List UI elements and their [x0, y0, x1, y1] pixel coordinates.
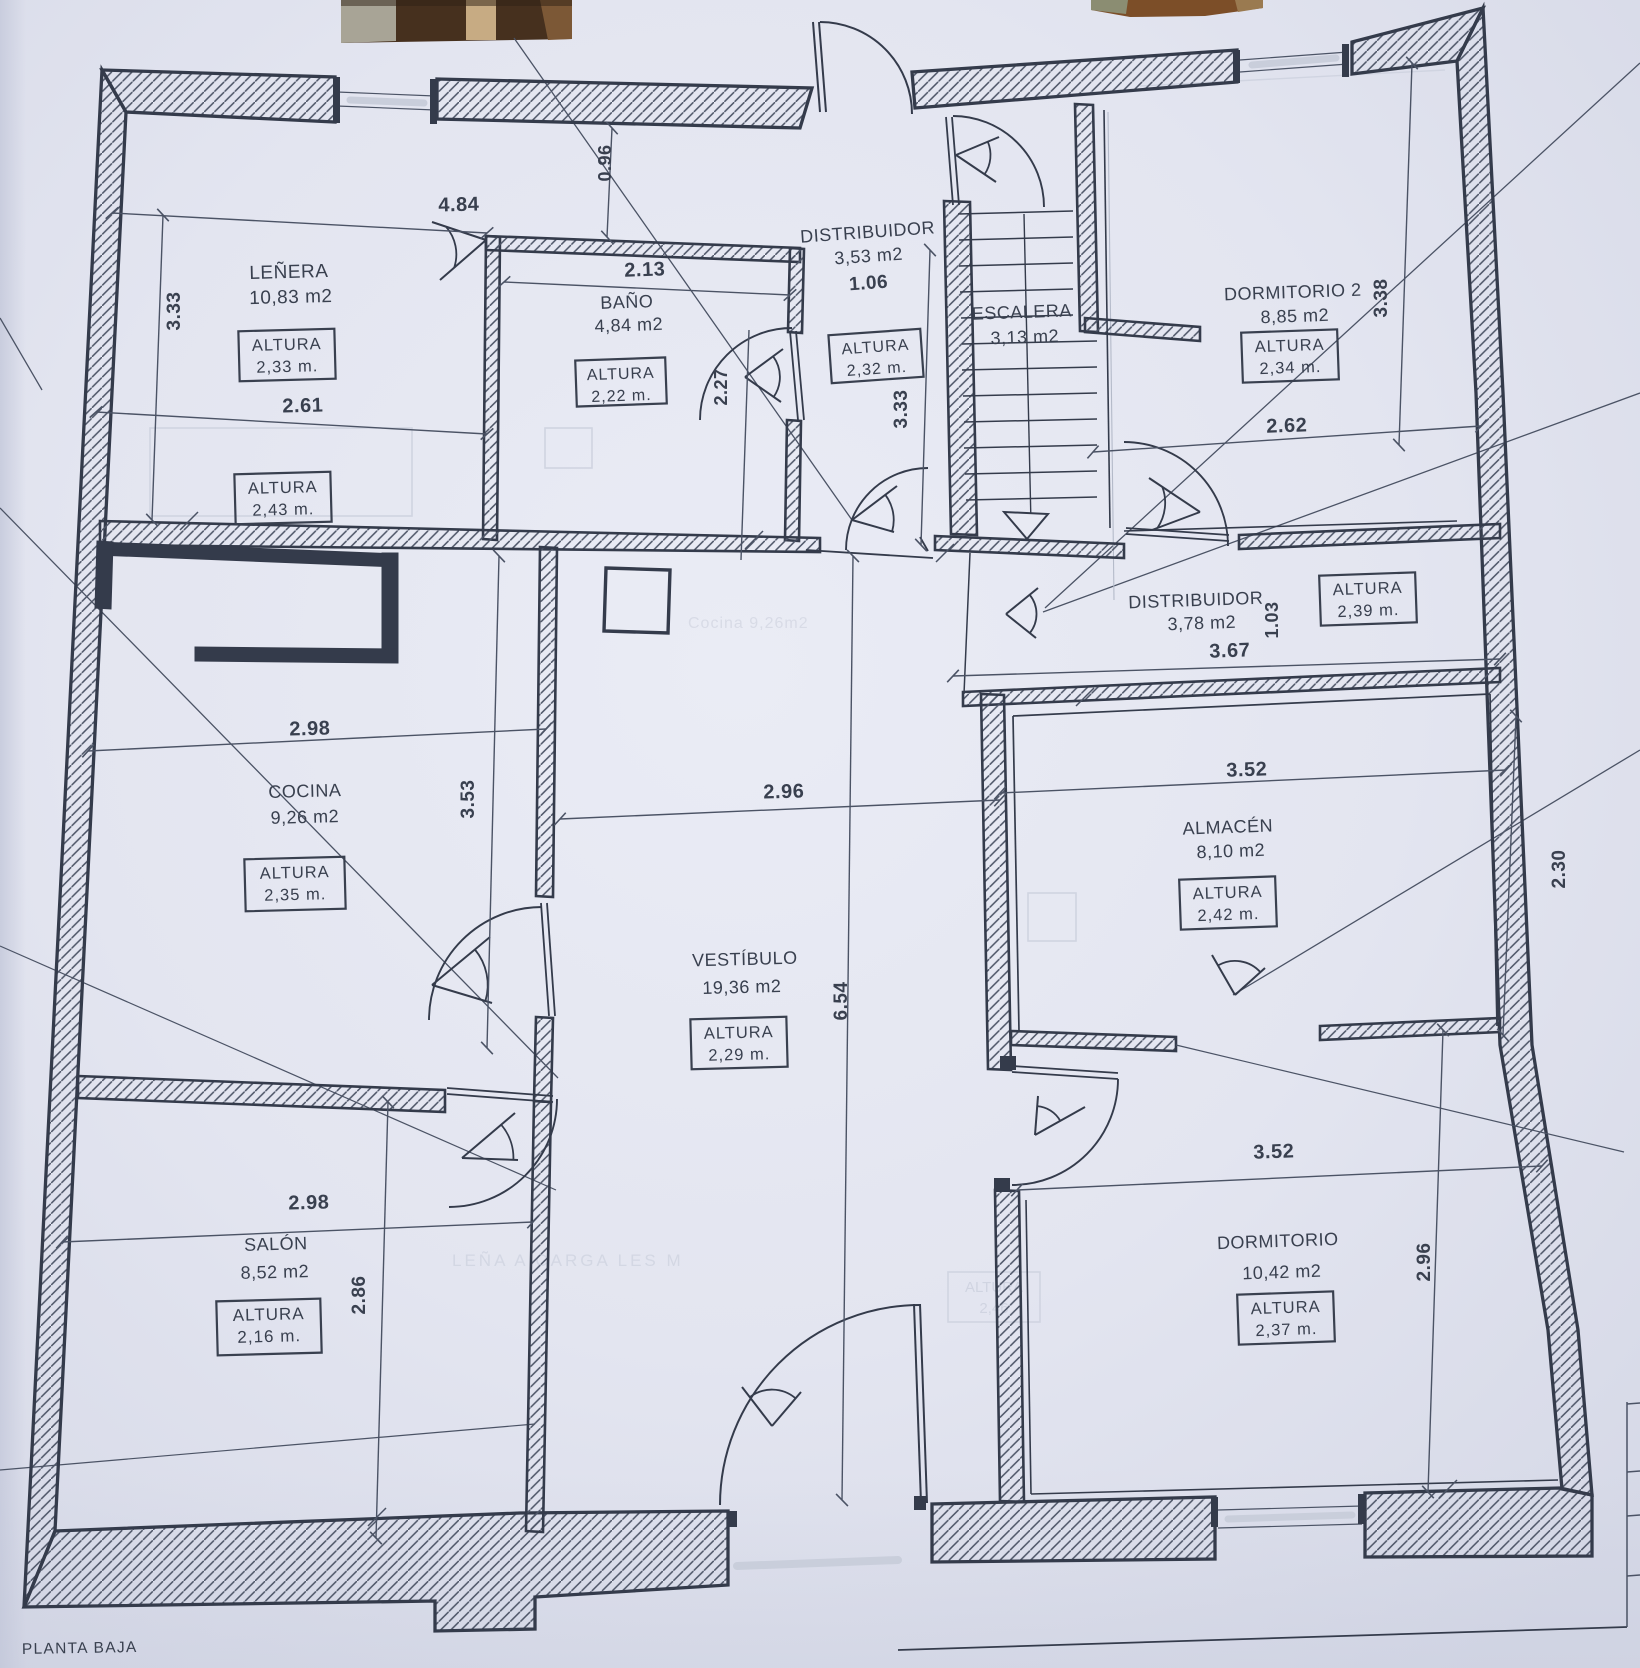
svg-text:4,84 m2: 4,84 m2: [594, 314, 663, 336]
svg-text:ALTURA: ALTURA: [252, 335, 322, 355]
svg-text:2.13: 2.13: [624, 258, 666, 281]
svg-text:3,78 m2: 3,78 m2: [1167, 612, 1236, 634]
svg-text:ALTURA: ALTURA: [1254, 336, 1324, 356]
svg-text:2.62: 2.62: [1266, 414, 1308, 437]
svg-text:1.06: 1.06: [848, 272, 888, 296]
svg-text:2.96: 2.96: [763, 780, 804, 803]
svg-text:ALTURA: ALTURA: [586, 365, 654, 384]
svg-text:9,26 m2: 9,26 m2: [270, 806, 339, 828]
svg-text:10,42 m2: 10,42 m2: [1242, 1261, 1322, 1284]
svg-text:BAÑO: BAÑO: [600, 290, 654, 313]
svg-text:VESTÍBULO: VESTÍBULO: [692, 948, 798, 971]
svg-text:ESCALERA: ESCALERA: [971, 300, 1072, 323]
svg-text:4.84: 4.84: [438, 193, 480, 216]
svg-text:2,22 m.: 2,22 m.: [591, 387, 652, 406]
svg-text:6.54: 6.54: [831, 982, 852, 1021]
svg-text:ALMACÉN: ALMACÉN: [1182, 815, 1273, 838]
svg-text:ALTURA: ALTURA: [233, 1304, 305, 1325]
svg-text:ALTURA: ALTURA: [248, 478, 318, 498]
svg-text:2.98: 2.98: [289, 717, 330, 740]
svg-text:3.38: 3.38: [1371, 279, 1392, 318]
svg-text:LEÑERA: LEÑERA: [249, 260, 329, 284]
svg-text:2,16 m.: 2,16 m.: [237, 1326, 301, 1347]
svg-text:ALTURA: ALTURA: [1192, 883, 1262, 903]
svg-text:2,29 m.: 2,29 m.: [708, 1045, 770, 1065]
svg-text:2,43 m.: 2,43 m.: [252, 500, 314, 520]
svg-text:3.52: 3.52: [1253, 1140, 1295, 1163]
svg-text:2,33 m.: 2,33 m.: [256, 357, 318, 377]
svg-text:3.52: 3.52: [1226, 758, 1268, 781]
svg-text:2.27: 2.27: [711, 368, 731, 405]
svg-text:3,13 m2: 3,13 m2: [990, 326, 1059, 348]
svg-text:2.30: 2.30: [1549, 850, 1570, 889]
svg-text:ALTURA: ALTURA: [1250, 1298, 1320, 1318]
svg-text:2,37 m.: 2,37 m.: [1255, 1320, 1318, 1340]
svg-text:DORMITORIO: DORMITORIO: [1217, 1229, 1339, 1253]
svg-text:2,42 m.: 2,42 m.: [1197, 905, 1260, 925]
svg-text:ALTURA: ALTURA: [704, 1023, 774, 1043]
svg-text:2,35 m.: 2,35 m.: [264, 885, 326, 905]
svg-text:LEÑA A CARGA LES M: LEÑA A CARGA LES M: [452, 1251, 684, 1270]
svg-text:ALTURA: ALTURA: [260, 863, 330, 883]
svg-text:8,52 m2: 8,52 m2: [240, 1261, 309, 1283]
svg-text:COCINA: COCINA: [268, 780, 342, 802]
svg-text:3.33: 3.33: [164, 292, 185, 331]
svg-text:SALÓN: SALÓN: [244, 1232, 308, 1255]
svg-text:3.67: 3.67: [1209, 639, 1251, 662]
svg-text:PLANTA BAJA: PLANTA BAJA: [22, 1639, 138, 1658]
svg-text:2.96: 2.96: [1414, 1243, 1435, 1282]
svg-text:2,34 m.: 2,34 m.: [1259, 358, 1322, 378]
svg-text:3.53: 3.53: [458, 780, 479, 819]
svg-text:8,85 m2: 8,85 m2: [1260, 305, 1329, 327]
svg-text:3.33: 3.33: [891, 390, 912, 429]
svg-text:19,36 m2: 19,36 m2: [702, 976, 782, 998]
svg-text:10,83 m2: 10,83 m2: [249, 286, 333, 309]
svg-text:2,39 m.: 2,39 m.: [1337, 601, 1400, 621]
svg-text:Cocina 9,26m2: Cocina 9,26m2: [688, 615, 809, 632]
svg-text:2.61: 2.61: [282, 394, 323, 417]
svg-text:ALTURA: ALTURA: [1332, 579, 1402, 599]
svg-text:8,10 m2: 8,10 m2: [1196, 840, 1265, 862]
svg-text:0.96: 0.96: [595, 144, 615, 181]
svg-text:2.86: 2.86: [349, 1276, 370, 1315]
svg-text:1.03: 1.03: [1262, 601, 1282, 638]
svg-text:2.98: 2.98: [288, 1191, 329, 1214]
